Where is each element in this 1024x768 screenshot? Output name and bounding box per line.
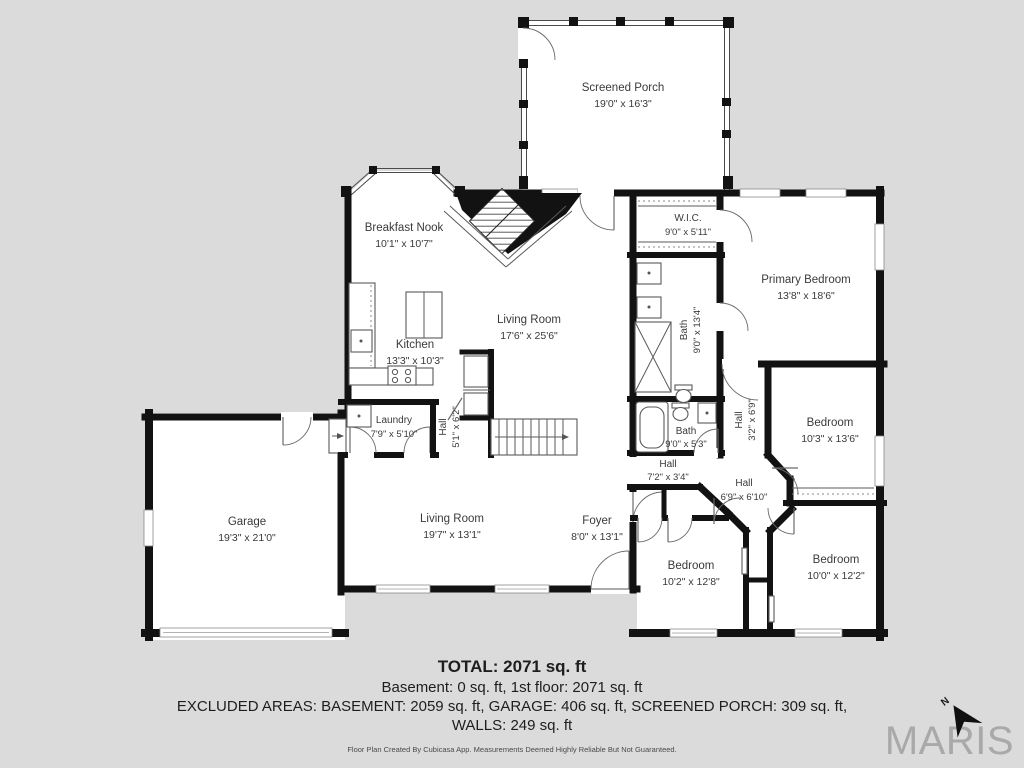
- svg-text:Bedroom: Bedroom: [807, 417, 854, 429]
- total-area: TOTAL: 2071 sq. ft: [0, 657, 1024, 677]
- svg-text:19'0" x 16'3": 19'0" x 16'3": [594, 98, 652, 110]
- svg-text:10'0" x 12'2": 10'0" x 12'2": [807, 570, 865, 582]
- svg-text:7'2" x 3'4": 7'2" x 3'4": [647, 472, 689, 483]
- svg-text:6'9" x 6'10": 6'9" x 6'10": [721, 492, 768, 503]
- north-label: N: [939, 695, 951, 708]
- svg-text:17'6" x 25'6": 17'6" x 25'6": [500, 330, 558, 342]
- floor-plan-page: Screened Porch 19'0" x 16'3" Breakfast N…: [0, 0, 1024, 768]
- svg-text:Hall: Hall: [735, 478, 752, 489]
- svg-text:19'7" x 13'1": 19'7" x 13'1": [423, 529, 481, 541]
- svg-text:9'0" x 5'11": 9'0" x 5'11": [665, 227, 711, 238]
- disclaimer: Floor Plan Created By Cubicasa App. Meas…: [0, 745, 1024, 754]
- svg-text:8'0" x 13'1": 8'0" x 13'1": [571, 531, 623, 543]
- svg-text:Living Room: Living Room: [420, 513, 484, 525]
- svg-text:13'8" x 18'6": 13'8" x 18'6": [777, 290, 835, 302]
- svg-text:Bedroom: Bedroom: [668, 560, 715, 572]
- svg-text:Garage: Garage: [228, 516, 266, 528]
- svg-text:Hall: Hall: [438, 418, 449, 435]
- svg-text:19'3" x 21'0": 19'3" x 21'0": [218, 532, 276, 544]
- svg-text:Bedroom: Bedroom: [813, 554, 860, 566]
- svg-text:Hall: Hall: [659, 459, 676, 470]
- svg-text:5'1" x 6'2": 5'1" x 6'2": [451, 406, 462, 448]
- walls-area: WALLS: 249 sq. ft: [0, 717, 1024, 734]
- laundry-fixtures: [347, 405, 371, 427]
- svg-text:Screened Porch: Screened Porch: [582, 82, 664, 94]
- svg-text:Hall: Hall: [734, 411, 745, 428]
- north-arrow-icon: N: [936, 688, 988, 740]
- floor-plan-drawing: Screened Porch 19'0" x 16'3" Breakfast N…: [0, 0, 1024, 768]
- svg-text:Bath: Bath: [676, 426, 697, 437]
- svg-text:Kitchen: Kitchen: [396, 339, 434, 351]
- svg-text:Foyer: Foyer: [582, 515, 612, 527]
- floor-breakdown: Basement: 0 sq. ft, 1st floor: 2071 sq. …: [0, 679, 1024, 696]
- svg-text:Bath: Bath: [679, 320, 690, 341]
- svg-text:Laundry: Laundry: [376, 415, 412, 426]
- maris-logo: MARIS N: [890, 684, 1018, 768]
- svg-text:Breakfast Nook: Breakfast Nook: [365, 222, 444, 234]
- svg-text:9'0" x 5'3": 9'0" x 5'3": [665, 439, 707, 450]
- excluded-areas: EXCLUDED AREAS: BASEMENT: 2059 sq. ft, G…: [0, 698, 1024, 715]
- svg-text:Primary Bedroom: Primary Bedroom: [761, 274, 850, 286]
- svg-text:W.I.C.: W.I.C.: [674, 213, 701, 224]
- svg-text:10'1" x 10'7": 10'1" x 10'7": [375, 238, 433, 250]
- area-summary: TOTAL: 2071 sq. ft Basement: 0 sq. ft, 1…: [0, 657, 1024, 754]
- svg-text:Living Room: Living Room: [497, 314, 561, 326]
- svg-text:9'0" x 13'4": 9'0" x 13'4": [692, 307, 703, 354]
- svg-text:3'2" x 6'9": 3'2" x 6'9": [747, 399, 758, 441]
- svg-text:10'2" x 12'8": 10'2" x 12'8": [662, 576, 720, 588]
- svg-text:10'3" x 13'6": 10'3" x 13'6": [801, 433, 859, 445]
- staircase: [491, 419, 577, 455]
- svg-text:7'9" x 5'10": 7'9" x 5'10": [371, 429, 418, 440]
- stove: [388, 366, 416, 385]
- svg-text:13'3" x 10'3": 13'3" x 10'3": [386, 355, 444, 367]
